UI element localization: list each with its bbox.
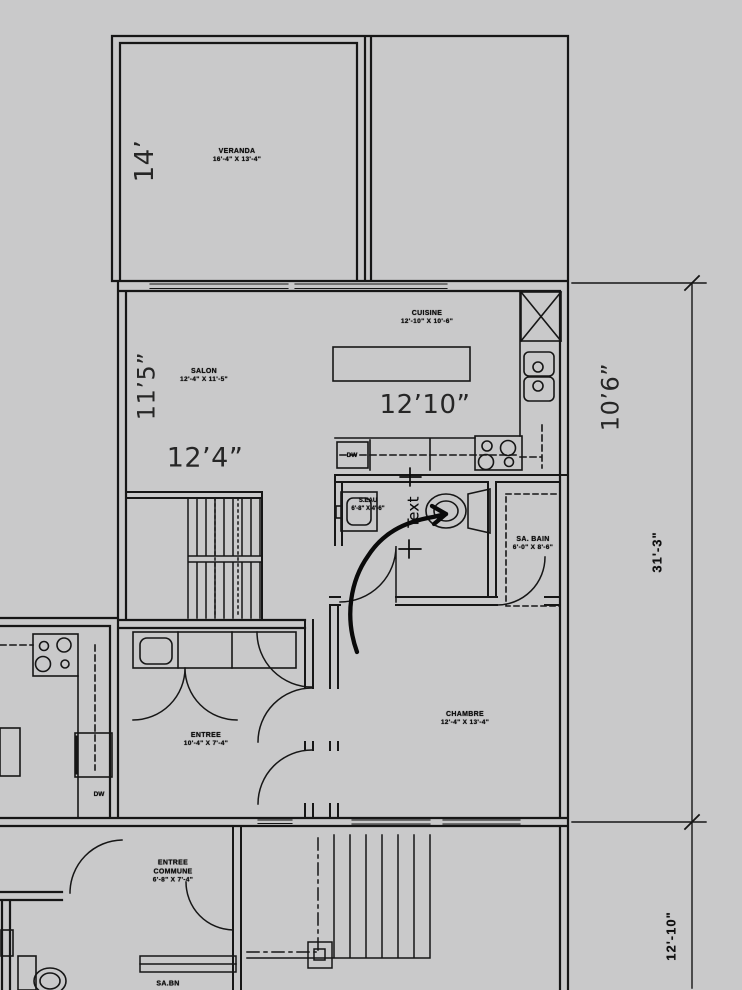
island-left bbox=[0, 728, 20, 776]
room-label-veranda: VERANDA 16'-4" X 13'-4" bbox=[213, 147, 261, 165]
entry-step bbox=[140, 956, 236, 972]
dim-12ft4: 12’4” bbox=[167, 440, 244, 475]
wall-nib bbox=[1, 930, 13, 956]
room-size: 12'-4" X 13'-4" bbox=[441, 719, 489, 728]
double-sink-top bbox=[524, 352, 554, 376]
floor-plan: 14’ 11’5” 12’4” 12’10” 10’6” 31'-3" 12'-… bbox=[0, 0, 742, 990]
dim-extension-lines bbox=[572, 283, 706, 822]
dishwasher-label-left: DW bbox=[94, 791, 105, 799]
fridge-x bbox=[521, 292, 561, 341]
stove-left bbox=[33, 634, 78, 676]
burner bbox=[505, 458, 514, 467]
bottom-left-bath bbox=[1, 930, 66, 990]
upper-cabinet-dashed bbox=[340, 425, 542, 468]
room-name: VERANDA bbox=[213, 147, 261, 156]
dim-31ft3: 31'-3" bbox=[650, 531, 667, 572]
vanity-dividers bbox=[178, 632, 232, 668]
toilet-tank bbox=[468, 489, 490, 533]
room-name: ENTREE bbox=[184, 731, 228, 740]
fridge-box bbox=[521, 292, 561, 341]
plan-geometry bbox=[0, 0, 742, 990]
burner bbox=[479, 455, 494, 470]
burner bbox=[57, 638, 71, 652]
toilet-bowl bbox=[426, 494, 466, 528]
room-size: 6'-0" X 8'-6" bbox=[513, 544, 553, 553]
dim-12ft10: 12’10” bbox=[380, 389, 471, 423]
dishwasher-box-left bbox=[75, 733, 112, 777]
newel-post bbox=[308, 942, 332, 968]
burner bbox=[482, 441, 492, 451]
room-label-chambre: CHAMBRE 12'-4" X 13'-4" bbox=[441, 710, 489, 728]
door-arcs bbox=[70, 546, 545, 930]
room-size: 12'-10" X 10'-6" bbox=[401, 318, 453, 327]
room-label-s-eau: S.EAU 6'-8" X 4'-6" bbox=[351, 498, 384, 514]
exterior-walls bbox=[0, 36, 568, 990]
stove bbox=[475, 436, 522, 470]
dim-11ft5: 11’5” bbox=[131, 352, 162, 420]
room-name: CUISINE bbox=[401, 309, 453, 318]
dim-14ft: 14’ bbox=[129, 140, 163, 183]
freehand-arrowhead bbox=[432, 506, 446, 524]
freehand-arrow bbox=[350, 514, 446, 652]
room-name: SA. BAIN bbox=[513, 535, 553, 544]
freehand-annotation bbox=[0, 0, 742, 990]
dimension-lines bbox=[572, 276, 706, 988]
stair-rail-dashed bbox=[215, 498, 238, 618]
room-name: ENTREE bbox=[153, 859, 193, 868]
burner bbox=[40, 642, 49, 651]
burner bbox=[61, 660, 69, 668]
room-name: SALON bbox=[180, 367, 228, 376]
faucet bbox=[336, 506, 342, 518]
room-name: S.EAU bbox=[351, 498, 384, 506]
stair-treads bbox=[188, 498, 262, 618]
dishwasher-label: DW bbox=[347, 452, 358, 460]
stairs-main bbox=[188, 498, 262, 618]
room-size: 6'-8" X 7'-4" bbox=[153, 877, 193, 886]
room-size: 10'-4" X 7'-4" bbox=[184, 740, 228, 749]
vanity-counter bbox=[133, 632, 296, 668]
kitchen-island bbox=[333, 347, 470, 381]
burner bbox=[36, 657, 51, 672]
stair-treads bbox=[247, 835, 430, 958]
dim-ticks bbox=[685, 276, 699, 829]
burner bbox=[501, 441, 516, 456]
sink-drain bbox=[533, 381, 543, 391]
room-size: 12'-4" X 11'-5" bbox=[180, 376, 228, 385]
dim-12ft10-lower: 12'-10" bbox=[664, 911, 681, 961]
stair-centerline-dashdot bbox=[247, 838, 318, 952]
toilet-tank bbox=[18, 956, 36, 990]
toilet-bowl bbox=[34, 968, 66, 990]
entree-vanity bbox=[133, 632, 296, 668]
room-size: 16'-4" X 13'-4" bbox=[213, 156, 261, 165]
room-size: 6'-8" X 4'-6" bbox=[351, 506, 384, 514]
newel-post-inner bbox=[314, 949, 325, 960]
room-label-entree-commune: ENTREE COMMUNE 6'-8" X 7'-4" bbox=[153, 859, 193, 886]
dim-10ft6: 10’6” bbox=[595, 363, 626, 431]
room-name: COMMUNE bbox=[153, 868, 193, 877]
upper-cabinet-dashed bbox=[0, 645, 95, 770]
stairs-basement bbox=[140, 835, 430, 972]
sink-drain bbox=[533, 362, 543, 372]
vanity-basin bbox=[140, 638, 172, 664]
room-label-sa-bain: SA. BAIN 6'-0" X 8'-6" bbox=[513, 535, 553, 553]
room-label-salon: SALON 12'-4" X 11'-5" bbox=[180, 367, 228, 385]
toilet-bowl-inner bbox=[434, 501, 458, 521]
text-annotation: Text bbox=[404, 496, 424, 528]
room-name: CHAMBRE bbox=[441, 710, 489, 719]
room-label-cuisine: CUISINE 12'-10" X 10'-6" bbox=[401, 309, 453, 327]
toilet-bowl-inner bbox=[40, 973, 60, 989]
room-label-entree: ENTREE 10'-4" X 7'-4" bbox=[184, 731, 228, 749]
room-label-sa-bn: SA.BN bbox=[156, 979, 179, 988]
double-sink-bottom bbox=[524, 377, 554, 401]
